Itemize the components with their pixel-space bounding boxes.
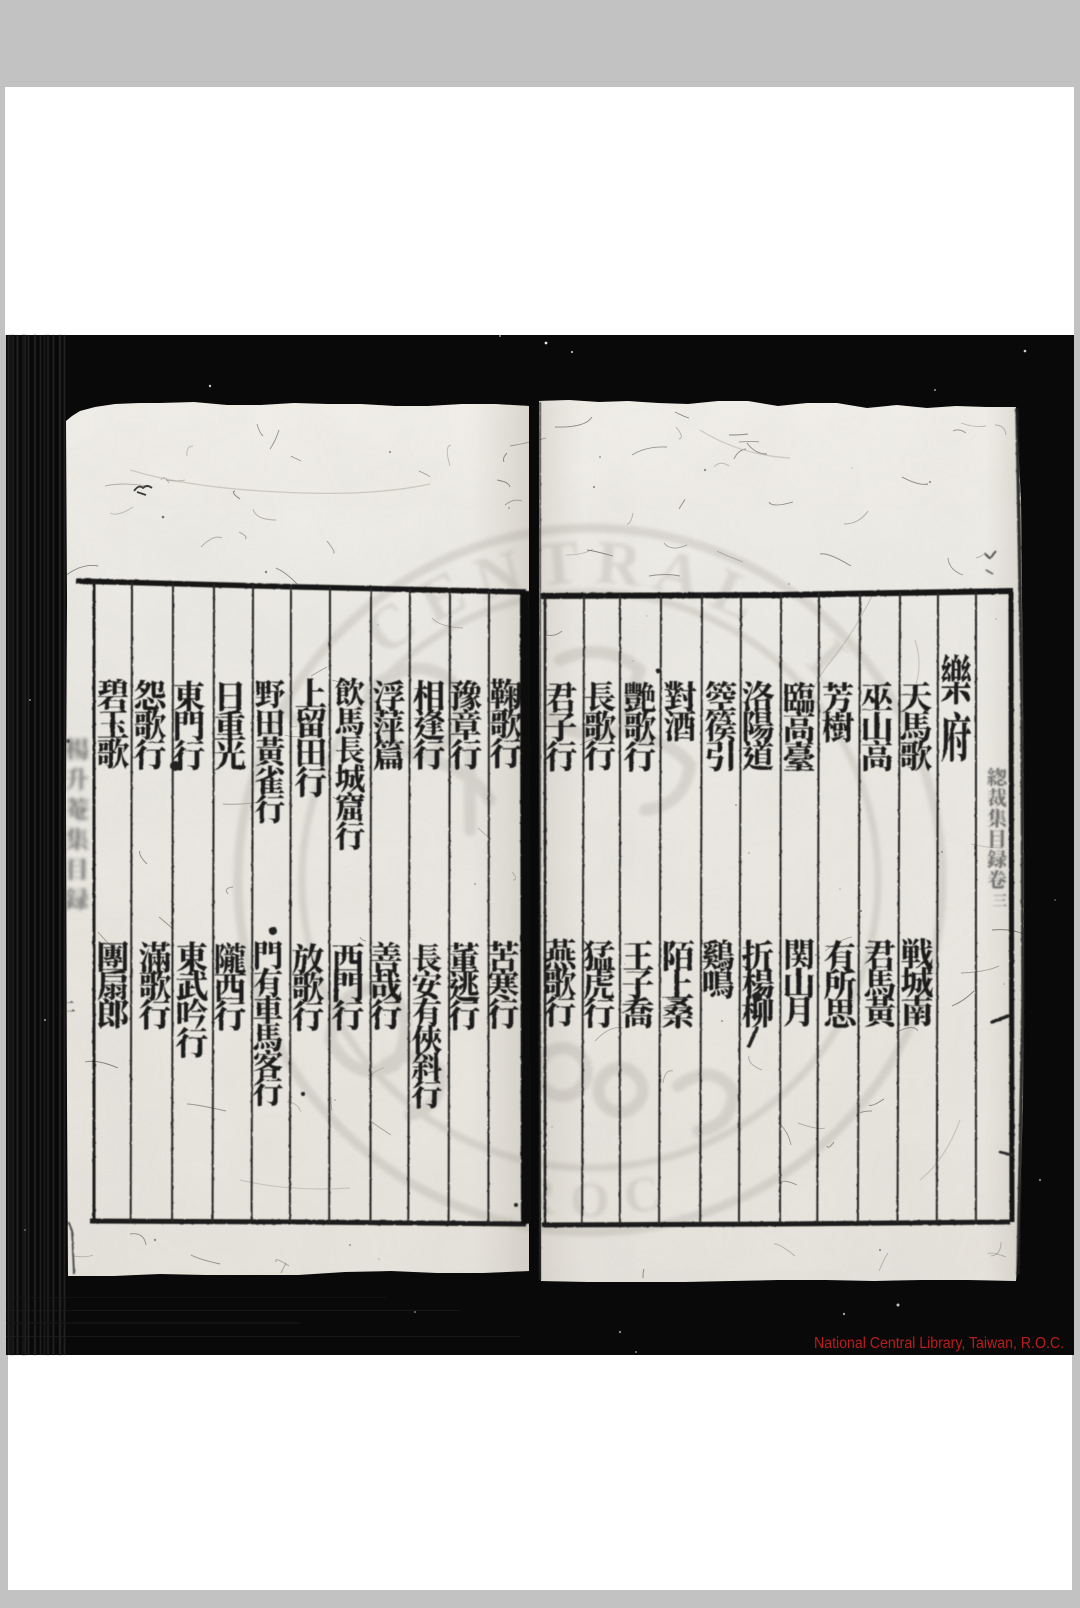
svg-text:R: R (593, 528, 645, 600)
svg-text:O: O (571, 1171, 610, 1227)
svg-text:National Central Library, Taiw: National Central Library, Taiwan, R.O.C. (814, 1335, 1064, 1352)
svg-text:T: T (535, 528, 582, 599)
